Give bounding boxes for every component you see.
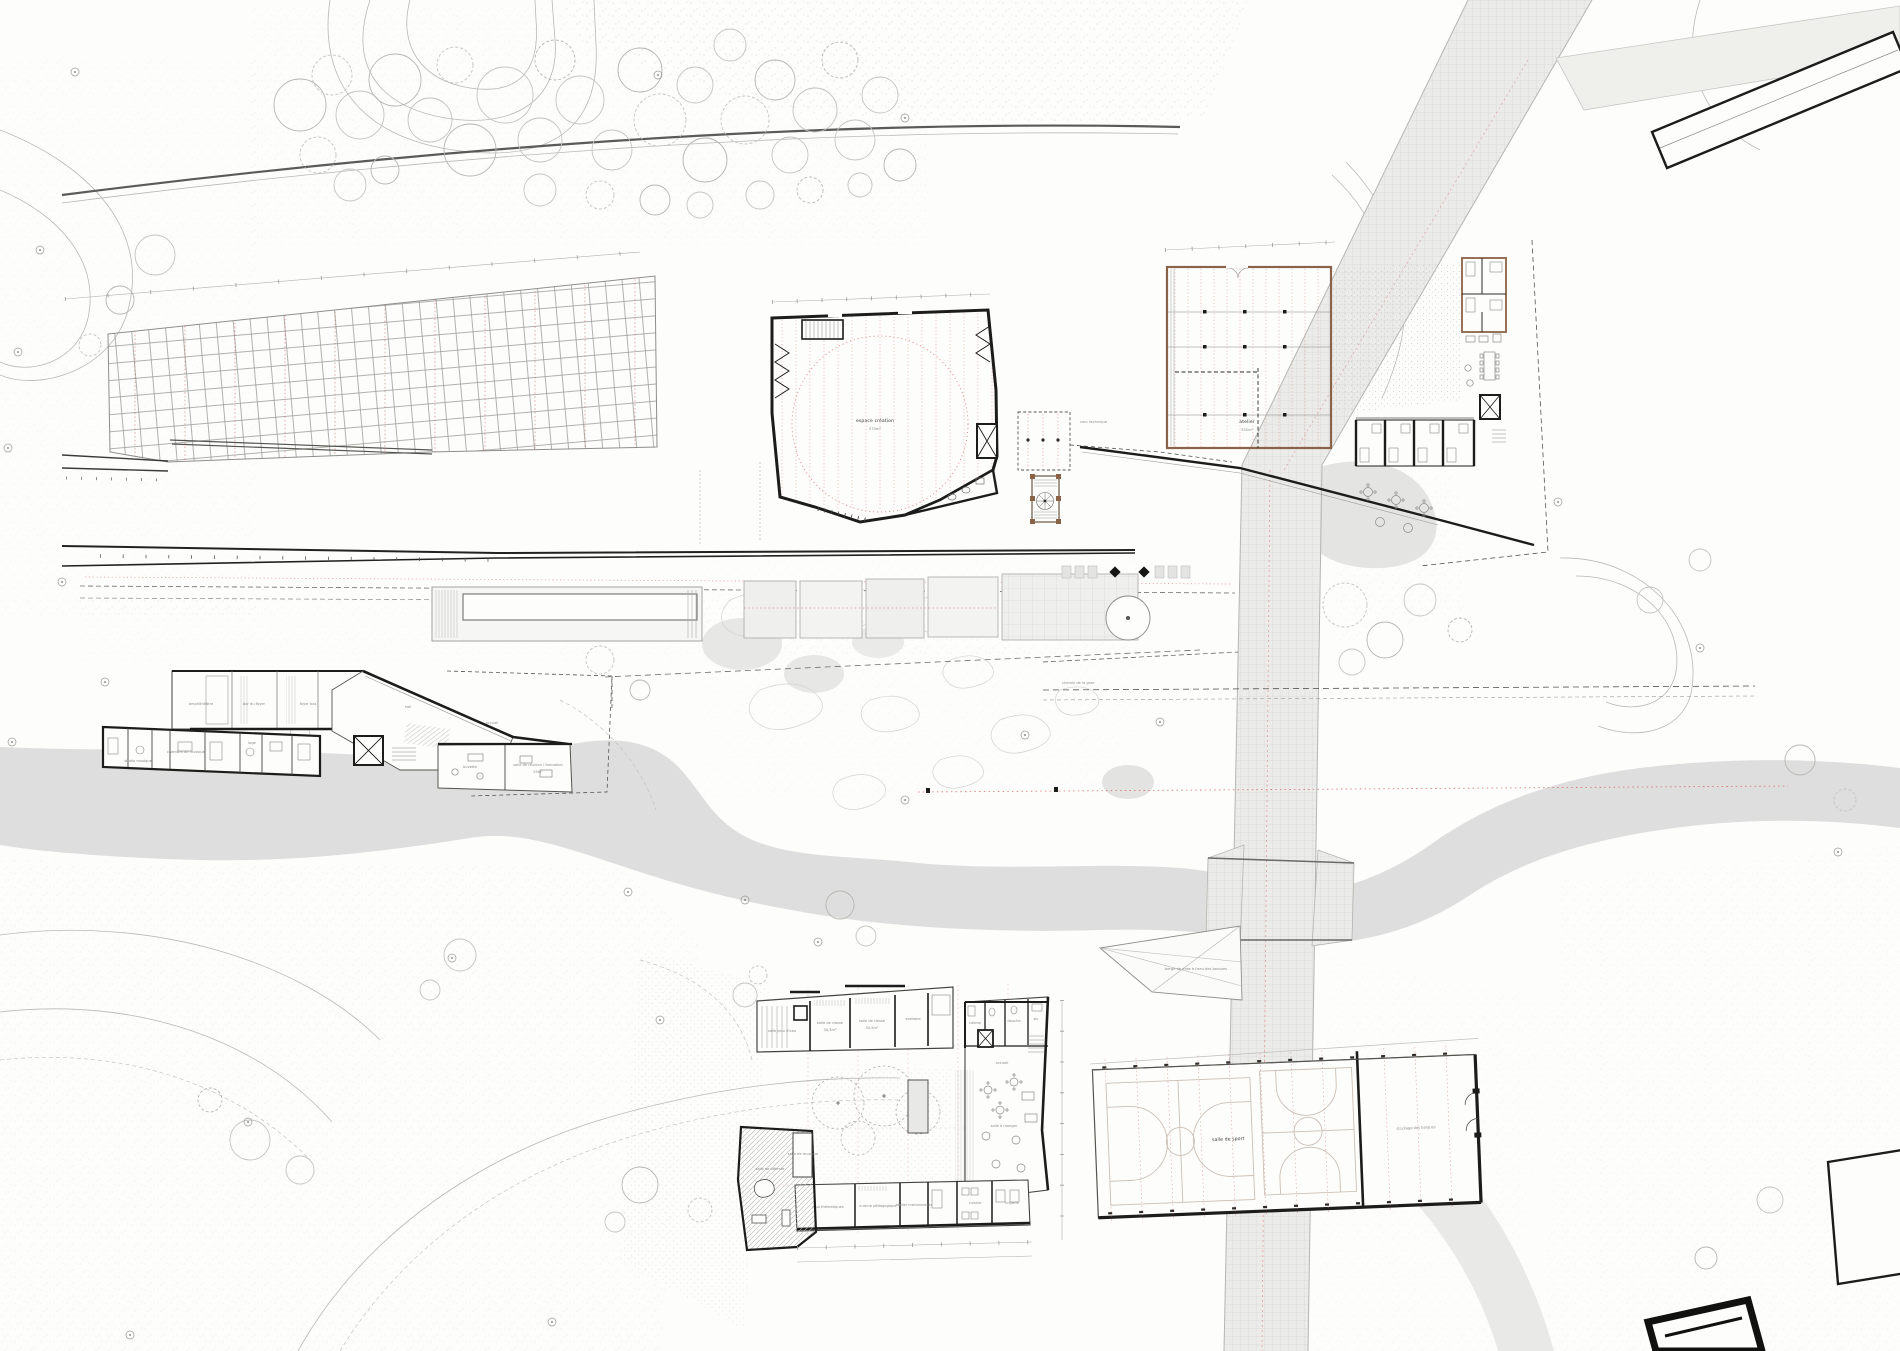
survey-mark-dot [904, 117, 906, 119]
survey-mark-dot [904, 799, 906, 801]
douche-label: douche [1007, 1019, 1021, 1023]
amphi-label: amphithéâtre [189, 702, 214, 706]
wc-label: wc [1034, 1017, 1039, 1021]
cuisine-peda-label: cuisine pédagogique [859, 1204, 897, 1208]
jeux-eau-label: salle jeux d'eau [768, 1029, 796, 1033]
creation-hall-area: 570m² [869, 427, 881, 431]
chambre-label: chambre de musique [167, 750, 206, 754]
accueil-school-label: accueil [996, 1061, 1009, 1065]
tree-canopy [1448, 618, 1472, 642]
reunion-area: 55m² [533, 770, 543, 774]
cour-technique-label: cour technique [1080, 420, 1108, 424]
tree-canopy [1689, 549, 1711, 571]
survey-mark-dot [1159, 721, 1161, 723]
survey-mark-dot [1699, 647, 1701, 649]
launch-deck: berge de mise à l'eau des barques [1100, 926, 1242, 1000]
loge-label: loge [248, 741, 256, 745]
bar-label: bar du foyer [243, 702, 266, 706]
vestiaire-label: vestiaire [905, 1017, 921, 1021]
site-plan-drawing: chemin de la gare [0, 0, 1900, 1351]
survey-mark-dot [551, 1321, 553, 1323]
cuisine-label: cuisine [969, 1201, 982, 1205]
classe1-area: 34,5m² [824, 1028, 838, 1032]
jeux-label: jeux thématiques [811, 1205, 844, 1209]
creation-hall-building: espace création 570m² [772, 294, 997, 522]
atelier-label: atelier [1239, 419, 1254, 425]
survey-mark-dot [104, 681, 106, 683]
survey-mark-dot [129, 1334, 131, 1336]
survey-mark-dot [1024, 734, 1026, 736]
accueil-label: accueil [486, 721, 499, 725]
survey-mark-dot [657, 74, 659, 76]
survey-mark-dot [61, 581, 63, 583]
stair-tower: cour technique [1018, 412, 1232, 524]
classe2-label: salle de classe [859, 1019, 886, 1023]
foyer-bas-label: foyer bas [300, 702, 317, 706]
lingerie-label: lingerie [1005, 1201, 1019, 1205]
cabine-label: cabine [969, 1021, 982, 1025]
school-building: salle jeux d'eau salle de classe 34,5m² … [738, 984, 1062, 1262]
marionnettes-label: atelier marionnettes [896, 1203, 933, 1207]
walkway-label: chemin de la gare [1062, 681, 1095, 685]
survey-mark-dot [744, 899, 746, 901]
deck-label: berge de mise à l'eau des barques [1165, 967, 1227, 971]
survey-mark-dot [659, 1019, 661, 1021]
survey-mark-dot [451, 957, 453, 959]
reunion-label: salle de réunion / formation [513, 763, 563, 767]
site-plan-canvas: chemin de la gare [0, 0, 1900, 1351]
studio-label: studio musique [124, 759, 152, 763]
survey-mark-dot [17, 351, 19, 353]
survey-mark-dot [817, 941, 819, 943]
survey-mark-dot [39, 249, 41, 251]
survey-mark-dot [1557, 501, 1559, 503]
survey-mark-dot [247, 1121, 249, 1123]
building-right-edge [1828, 1150, 1900, 1284]
atelier-area: 555m² [1241, 428, 1253, 432]
tree-canopy [749, 966, 767, 984]
detente-label: salle de détente [755, 1167, 785, 1171]
tree-canopy [1637, 587, 1663, 613]
tree-canopy [630, 680, 650, 700]
survey-mark-dot [11, 741, 13, 743]
hall-label: hall [405, 705, 411, 709]
survey-mark-dot [627, 891, 629, 893]
survey-mark-dot [74, 71, 76, 73]
tree-canopy [1339, 649, 1365, 675]
creation-hall-label: espace création [856, 417, 894, 424]
classe2-area: 34,5m² [866, 1026, 880, 1030]
sports-hall: salle de sport stockage des barques [1090, 1038, 1485, 1222]
tree-canopy [856, 926, 876, 946]
survey-mark-dot [1837, 851, 1839, 853]
classe1-label: salle de classe [817, 1021, 844, 1025]
survey-mark-dot [7, 447, 9, 449]
manger-label: salle à manger [991, 1124, 1018, 1128]
buvette-label: buvette [463, 765, 478, 769]
